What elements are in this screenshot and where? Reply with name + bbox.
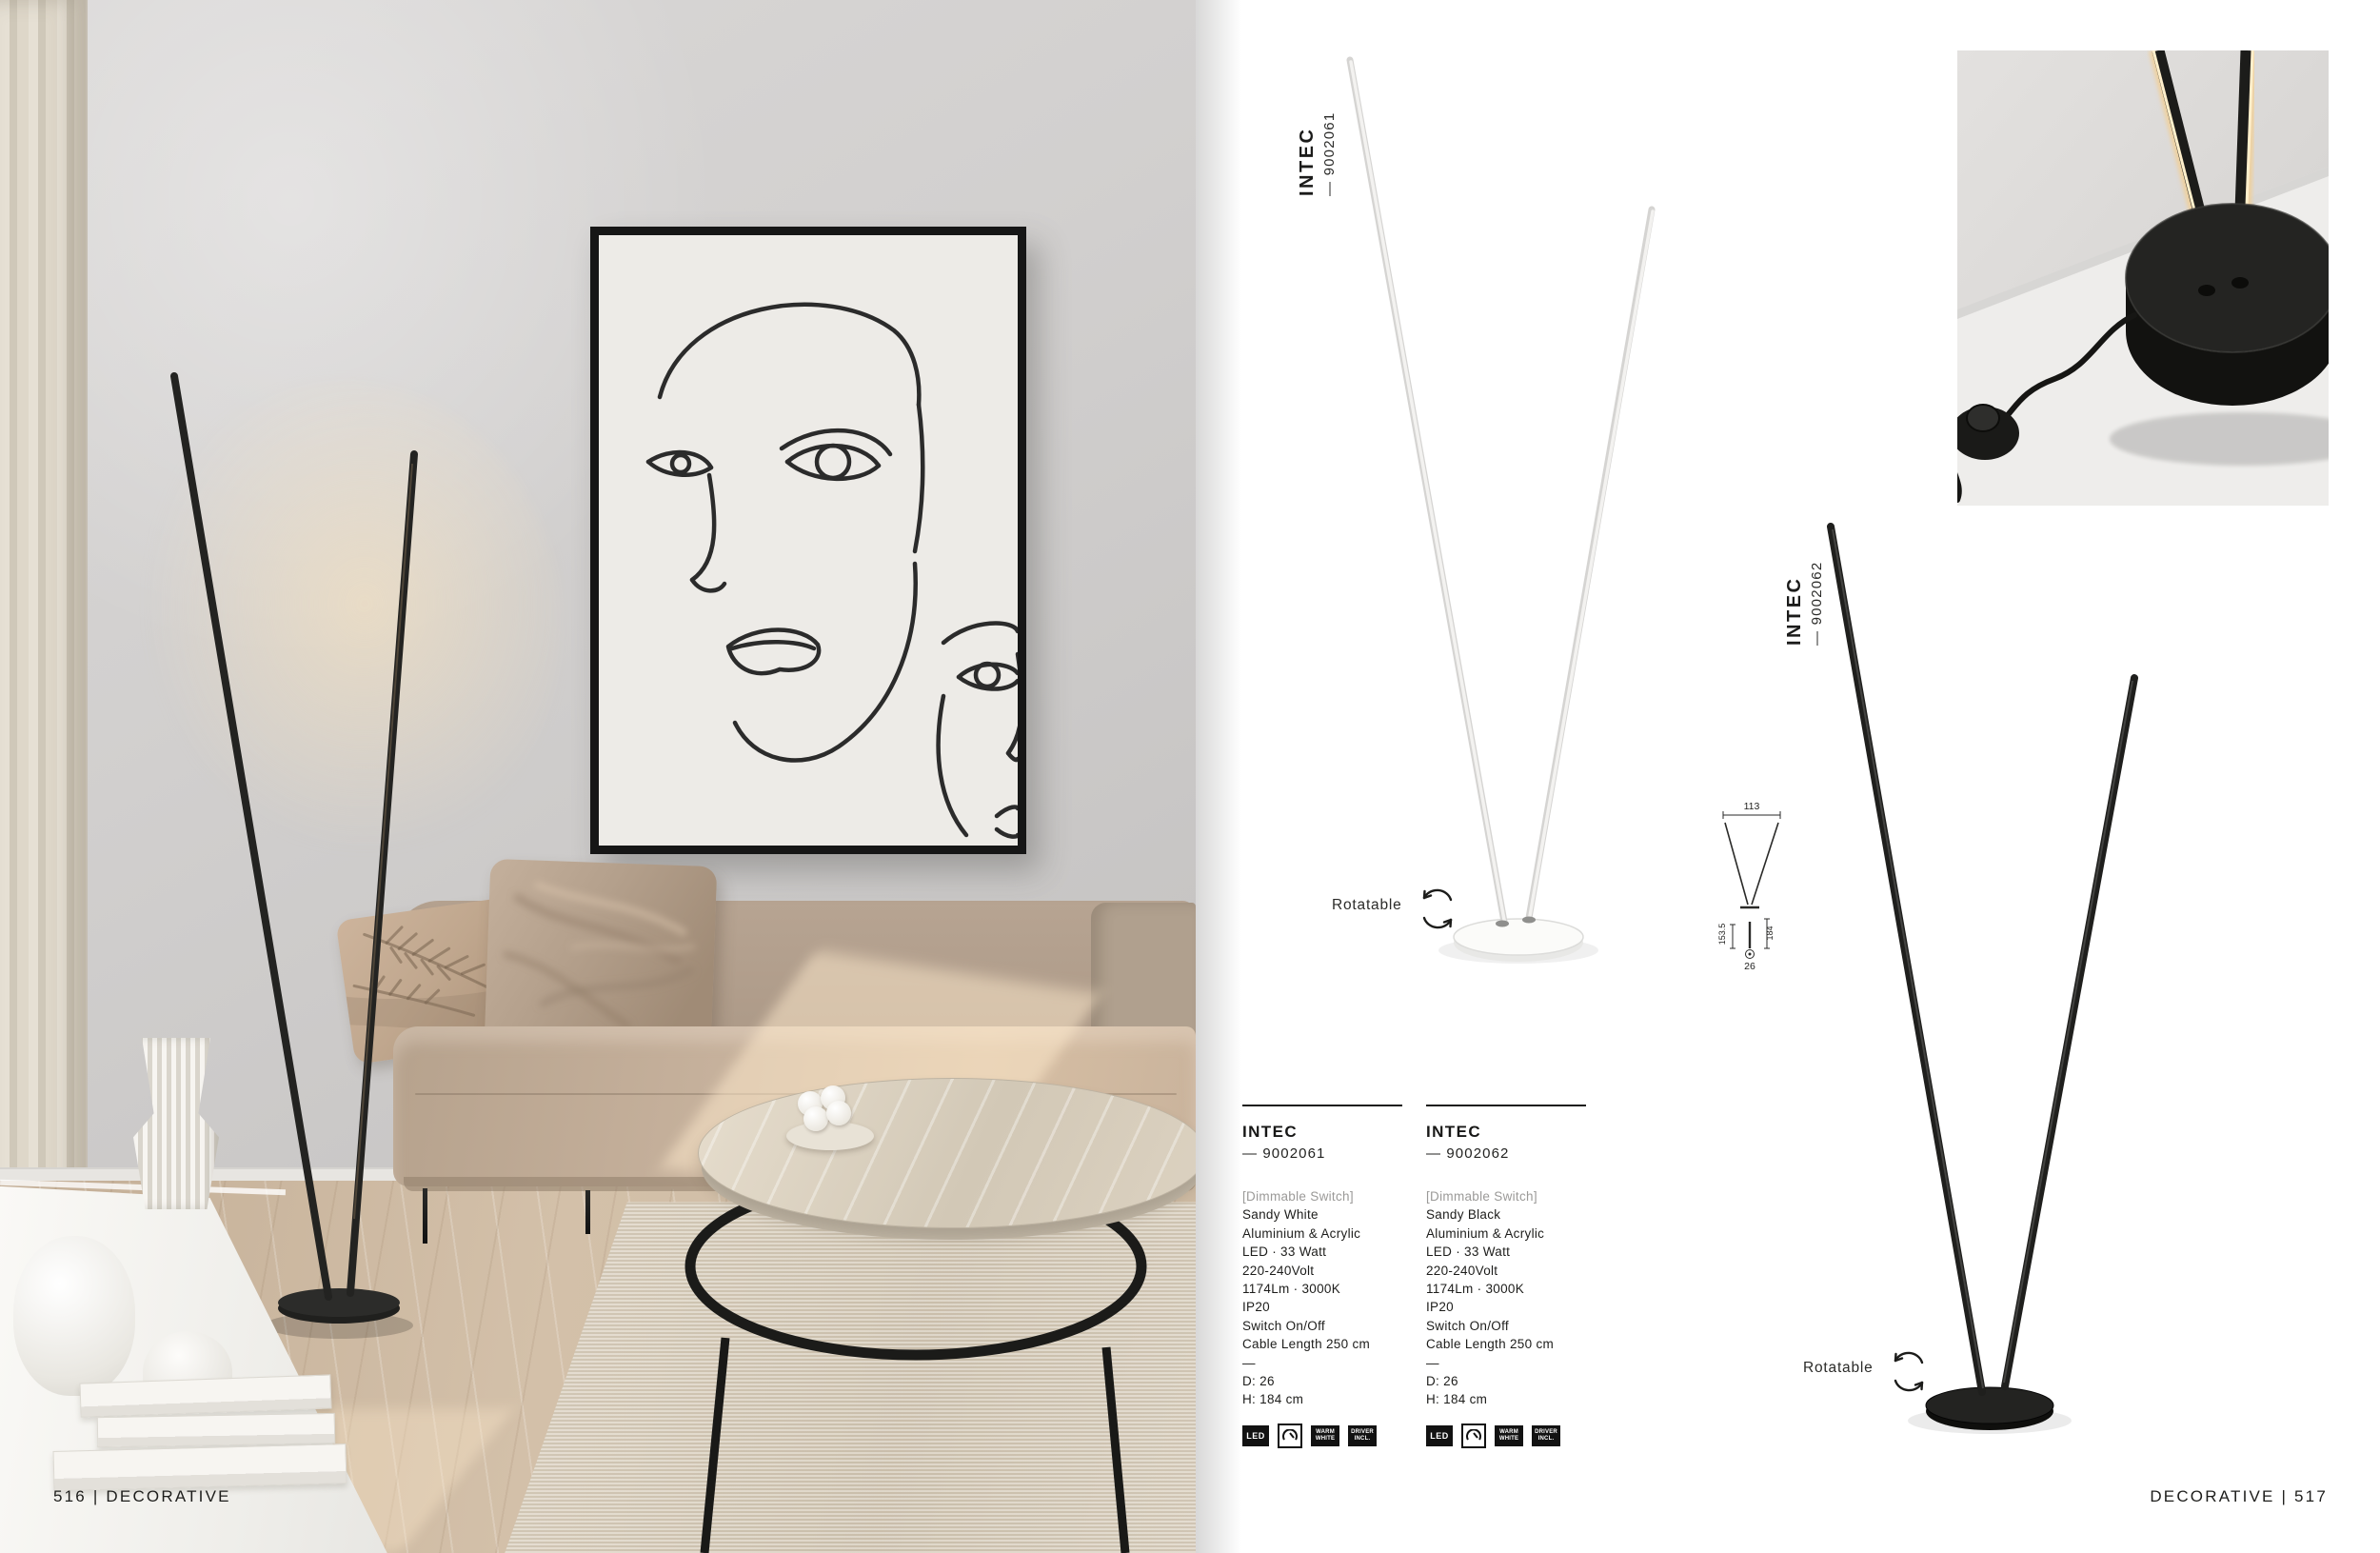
spec-line: Sandy Black	[1426, 1205, 1609, 1224]
page-gutter-shadow	[1196, 0, 1241, 1553]
spec-diameter: D: 26	[1426, 1372, 1609, 1390]
spec-separator: —	[1426, 1354, 1609, 1372]
diagram-total-height-value: 184	[1765, 926, 1775, 940]
spec-line: Sandy White	[1242, 1205, 1425, 1224]
badge-line: WARM	[1499, 1429, 1518, 1436]
book-stack	[97, 1413, 336, 1447]
badge-line: DRIVER	[1535, 1429, 1557, 1436]
spec-line: 1174Lm · 3000K	[1426, 1280, 1609, 1298]
spec-product-sku: — 9002062	[1426, 1145, 1609, 1162]
pleated-vase	[133, 1038, 219, 1209]
spec-line: LED · 33 Watt	[1242, 1243, 1425, 1261]
spec-line: Aluminium & Acrylic	[1242, 1224, 1425, 1243]
led-badge: LED	[1426, 1425, 1453, 1446]
catalog-spread: 516 | DECORATIVE INTEC — 9002061 Rotatab…	[0, 0, 2380, 1553]
warm-white-badge: WARM WHITE	[1495, 1425, 1523, 1446]
spec-line: LED · 33 Watt	[1426, 1243, 1609, 1261]
feature-badges: LED WARM WHITE DRIVER INCL.	[1426, 1424, 1609, 1448]
spec-column-9002062: INTEC — 9002062 [Dimmable Switch] Sandy …	[1426, 1105, 1609, 1448]
spec-product-name: INTEC	[1242, 1123, 1425, 1142]
spec-line: 1174Lm · 3000K	[1242, 1280, 1425, 1298]
base-closeup-photo	[1957, 50, 2329, 506]
dimmer-icon	[1461, 1424, 1486, 1448]
rotatable-label: Rotatable	[1803, 1360, 1874, 1377]
spec-feature: [Dimmable Switch]	[1242, 1187, 1425, 1205]
spec-rule	[1242, 1105, 1402, 1106]
dimmer-icon	[1278, 1424, 1302, 1448]
driver-included-badge: DRIVER INCL.	[1532, 1425, 1560, 1446]
rotate-icon	[1886, 1346, 1932, 1398]
driver-included-badge: DRIVER INCL.	[1348, 1425, 1377, 1446]
product-label-9002061: INTEC — 9002061	[1297, 112, 1338, 196]
diagram-base-value: 26	[1744, 961, 1755, 971]
badge-line: DRIVER	[1351, 1429, 1374, 1436]
book-stack	[53, 1443, 347, 1491]
rotatable-label: Rotatable	[1332, 897, 1402, 914]
spec-diameter: D: 26	[1242, 1372, 1425, 1390]
lifestyle-photo: 516 | DECORATIVE	[0, 0, 1196, 1553]
spec-line: IP20	[1426, 1298, 1609, 1316]
product-name: INTEC	[1297, 112, 1319, 196]
spec-line: Cable Length 250 cm	[1242, 1335, 1425, 1353]
spec-line: 220-240Volt	[1242, 1262, 1425, 1280]
spec-product-name: INTEC	[1426, 1123, 1609, 1142]
spec-product-sku: — 9002061	[1242, 1145, 1425, 1162]
badge-line: WHITE	[1316, 1436, 1335, 1443]
spec-line: 220-240Volt	[1426, 1262, 1609, 1280]
diagram-width-value: 113	[1744, 801, 1760, 812]
badge-line: INCL.	[1355, 1436, 1371, 1443]
badge-line: WARM	[1316, 1429, 1335, 1436]
rotate-icon	[1415, 884, 1460, 935]
badge-line: INCL.	[1538, 1436, 1555, 1443]
spec-rule	[1426, 1105, 1586, 1106]
feature-badges: LED WARM WHITE DRIVER INCL.	[1242, 1424, 1425, 1448]
diagram-inner-height-value: 153.5	[1717, 924, 1727, 946]
page-number-left: 516 | DECORATIVE	[53, 1487, 231, 1506]
spec-line: Switch On/Off	[1426, 1317, 1609, 1335]
spec-separator: —	[1242, 1354, 1425, 1372]
spec-line: IP20	[1242, 1298, 1425, 1316]
spec-feature: [Dimmable Switch]	[1426, 1187, 1609, 1205]
spec-line: Cable Length 250 cm	[1426, 1335, 1609, 1353]
spec-column-9002061: INTEC — 9002061 [Dimmable Switch] Sandy …	[1242, 1105, 1425, 1448]
spec-height: H: 184 cm	[1426, 1390, 1609, 1408]
spec-line: Aluminium & Acrylic	[1426, 1224, 1609, 1243]
warm-white-badge: WARM WHITE	[1311, 1425, 1339, 1446]
product-photo-black-lamp	[1790, 514, 2171, 1466]
product-photo-white-lamp	[1333, 38, 1733, 981]
spec-height: H: 184 cm	[1242, 1390, 1425, 1408]
dimension-diagram: 113 153.5 184 26	[1712, 798, 1792, 971]
page-number-right: DECORATIVE | 517	[2052, 1487, 2328, 1506]
led-badge: LED	[1242, 1425, 1269, 1446]
base-closeup-render	[1957, 50, 2329, 506]
spec-line: Switch On/Off	[1242, 1317, 1425, 1335]
round-vase	[13, 1236, 135, 1396]
badge-line: WHITE	[1499, 1436, 1518, 1443]
